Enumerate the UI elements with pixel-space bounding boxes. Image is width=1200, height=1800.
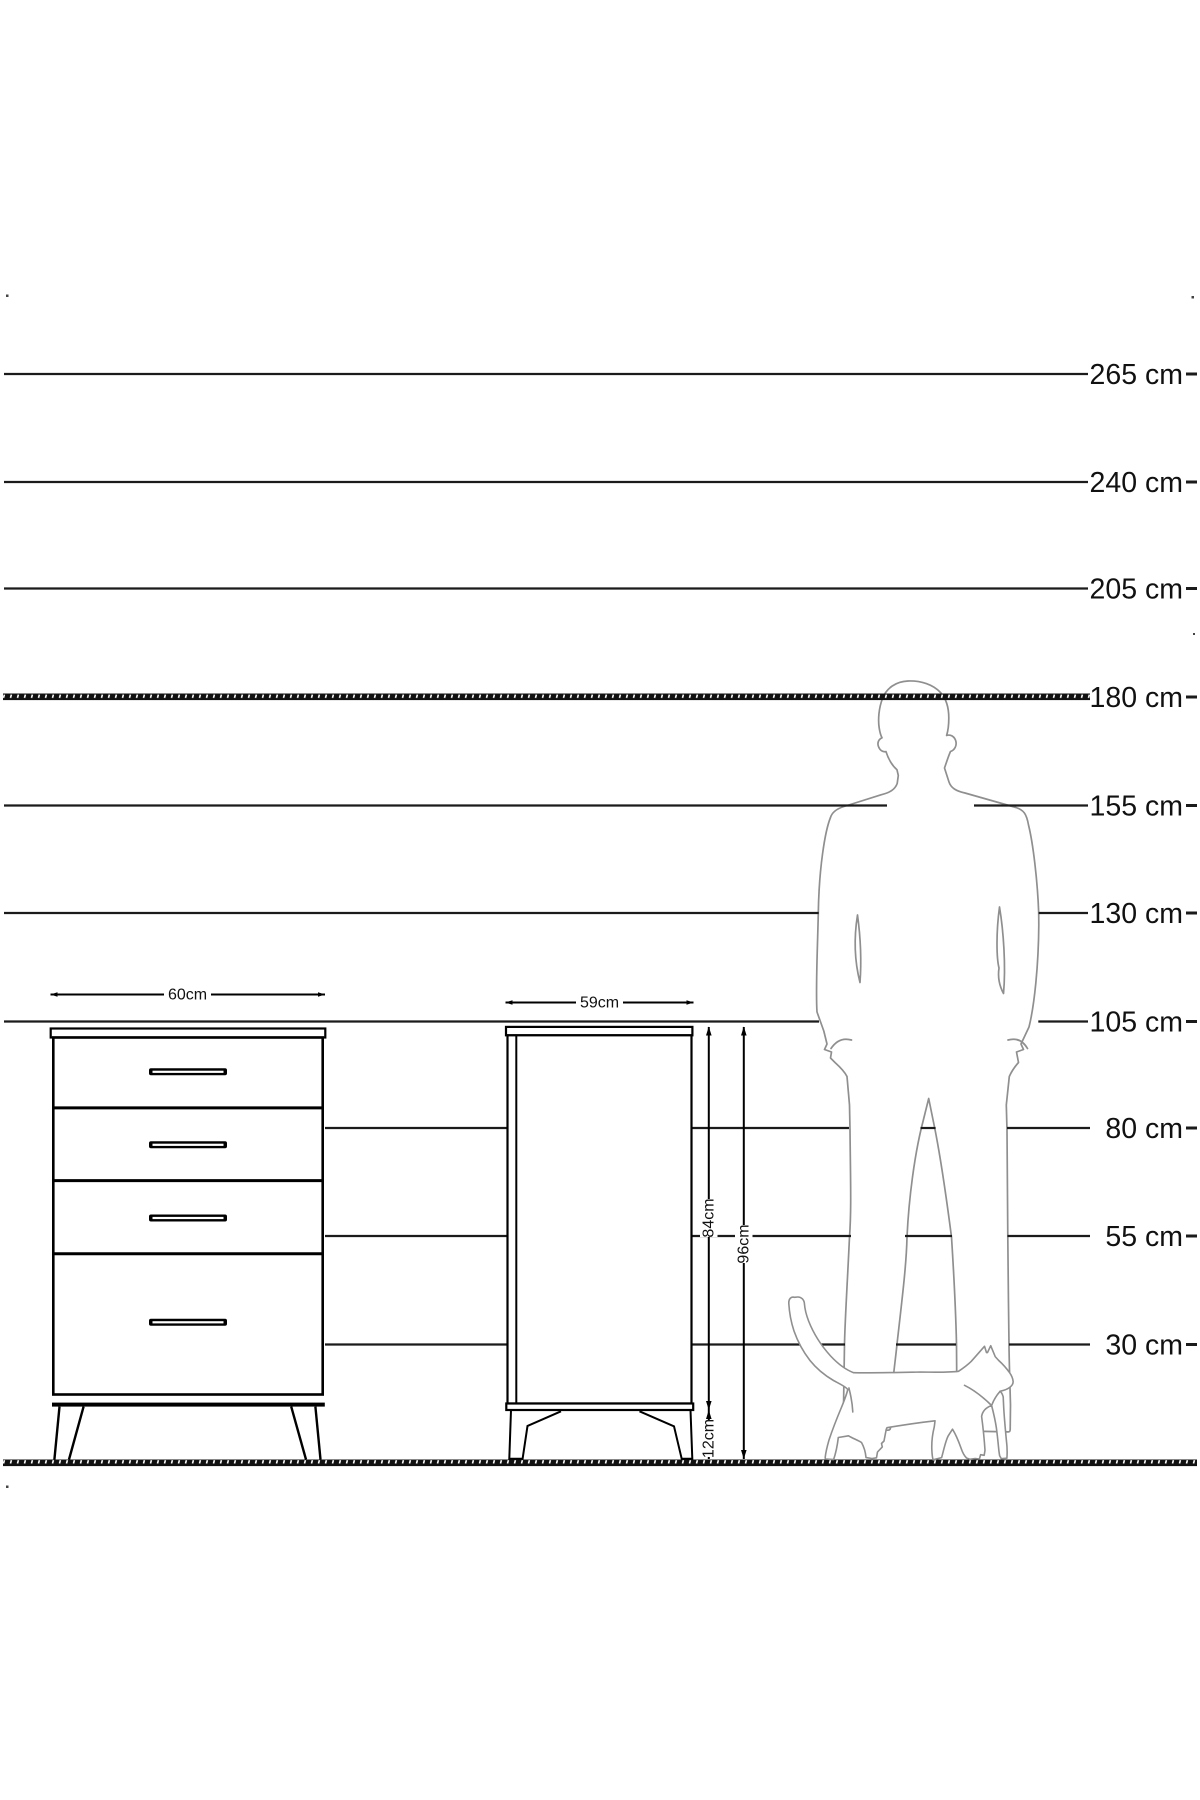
svg-text:105 cm: 105 cm: [1090, 1007, 1183, 1039]
svg-text:96cm: 96cm: [735, 1224, 752, 1263]
svg-text:180 cm: 180 cm: [1090, 682, 1183, 714]
svg-text:130 cm: 130 cm: [1090, 898, 1183, 930]
svg-text:30 cm: 30 cm: [1105, 1330, 1183, 1362]
svg-text:80 cm: 80 cm: [1105, 1113, 1183, 1145]
svg-text:155 cm: 155 cm: [1090, 791, 1183, 823]
svg-text:265 cm: 265 cm: [1090, 359, 1183, 391]
svg-text:240 cm: 240 cm: [1090, 467, 1183, 499]
svg-text:59cm: 59cm: [580, 995, 619, 1012]
svg-text:84cm: 84cm: [700, 1198, 717, 1237]
svg-text:60cm: 60cm: [168, 987, 207, 1004]
svg-text:205 cm: 205 cm: [1090, 574, 1183, 606]
svg-text:12cm: 12cm: [700, 1419, 717, 1458]
svg-text:55 cm: 55 cm: [1105, 1221, 1183, 1253]
